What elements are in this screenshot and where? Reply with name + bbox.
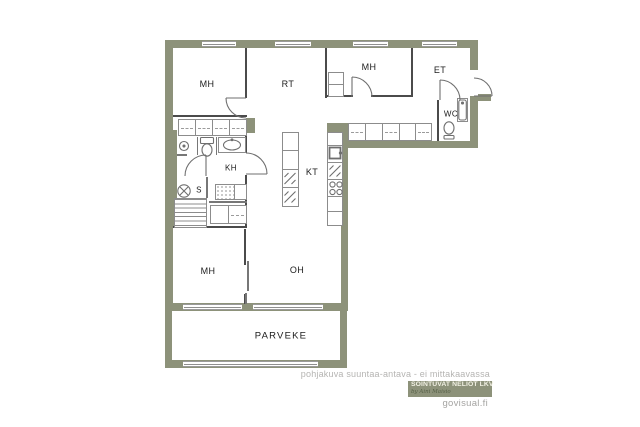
wall-kh-low-divider	[209, 201, 247, 203]
kitchen-island-cell	[282, 132, 299, 151]
wardrobe-icon	[415, 123, 432, 141]
room-label-parveke: PARVEKE	[255, 331, 307, 342]
door-icon	[185, 155, 206, 176]
closet	[234, 184, 247, 200]
wall-rt-mh2	[325, 48, 327, 98]
room-label-kh: KH	[225, 164, 237, 173]
room-label-oh: OH	[290, 265, 304, 275]
dishwasher-cabinet	[327, 162, 343, 180]
wardrobe-icon	[382, 123, 400, 141]
wall-rightwing-bottom	[341, 141, 478, 148]
wall-sauna-right	[206, 177, 208, 198]
room-label-kt: KT	[306, 167, 318, 177]
site-link: govisual.fi	[442, 398, 488, 409]
door-icon	[246, 153, 267, 174]
sink-cabinet	[457, 98, 468, 122]
room-label-mh3: MH	[201, 266, 216, 276]
sauna-stove-icon	[178, 185, 190, 197]
kitchen-counter-cell	[327, 196, 343, 212]
balcony-door-leaf	[245, 293, 247, 304]
kitchen-sink-cell	[327, 145, 343, 163]
wall-mh2-bottom-b	[371, 95, 413, 97]
stove-cell	[327, 179, 343, 197]
window-icon	[183, 361, 318, 367]
shower-icon	[180, 142, 189, 151]
window-icon	[183, 304, 242, 310]
window-icon	[202, 41, 236, 47]
toilet-icon	[201, 138, 214, 157]
wardrobe-icon	[212, 119, 230, 136]
wall-mh1-rt	[245, 48, 247, 98]
door-icon	[440, 80, 460, 100]
room-label-wc: WC	[444, 110, 458, 119]
room-label-et: ET	[434, 65, 446, 75]
wardrobe-icon	[195, 119, 213, 136]
freezer-cabinet	[282, 187, 299, 207]
wall-mh2-right	[411, 48, 413, 97]
wardrobe-icon	[399, 123, 416, 141]
room-label-mh1: MH	[200, 79, 215, 89]
wardrobe-icon	[178, 119, 196, 136]
wardrobe-icon	[228, 205, 247, 224]
fridge-cabinet	[282, 169, 299, 188]
wall-toilet-divider	[216, 137, 217, 155]
door-icon	[352, 77, 372, 97]
window-icon	[253, 304, 323, 310]
entry-door-opening	[470, 70, 478, 96]
shower-floor-icon	[215, 184, 235, 200]
wall-kitchen-corner	[327, 123, 341, 132]
wall-shower-divider	[197, 137, 198, 155]
disclaimer-text: pohjakuva suuntaa-antava - ei mittakaava…	[301, 369, 490, 379]
room-label-rt: RT	[282, 79, 295, 89]
sliding-door-leaf	[247, 261, 249, 291]
sink-cabinet	[218, 137, 246, 153]
wall-bath-stub	[246, 118, 255, 133]
wall-sauna-jamb	[177, 154, 187, 156]
wall-wc-left	[437, 100, 439, 141]
wardrobe-icon	[365, 123, 383, 141]
room-label-mh2: MH	[362, 62, 377, 72]
wall-mh3-oh	[244, 229, 246, 265]
wall-mh1-bottom	[173, 115, 247, 117]
kitchen-counter-cell	[327, 211, 343, 226]
wardrobe-icon	[348, 123, 366, 141]
window-icon	[422, 41, 457, 47]
wall-right-upper	[470, 48, 478, 70]
window-icon	[353, 41, 388, 47]
wardrobe-icon	[229, 119, 247, 136]
wall-right-lower	[470, 96, 478, 141]
room-label-s: S	[196, 186, 202, 195]
closet	[328, 84, 344, 97]
kitchen-counter-cell	[327, 132, 343, 146]
floor-plan: MH RT MH ET WC KH S KT MH OH PARVEKE	[0, 0, 640, 427]
brand-name: SOINTUVAT NELIÖT LKV	[411, 382, 489, 389]
brand-tagline: by Aini Maisio	[411, 390, 489, 396]
window-icon	[275, 41, 311, 47]
wall-entry-stub	[478, 94, 491, 101]
toilet-icon	[444, 122, 454, 139]
kitchen-island-cell	[282, 150, 299, 170]
sauna-benches-icon	[174, 198, 207, 228]
closet	[210, 205, 229, 224]
brand-badge: SOINTUVAT NELIÖT LKV by Aini Maisio	[408, 381, 492, 397]
